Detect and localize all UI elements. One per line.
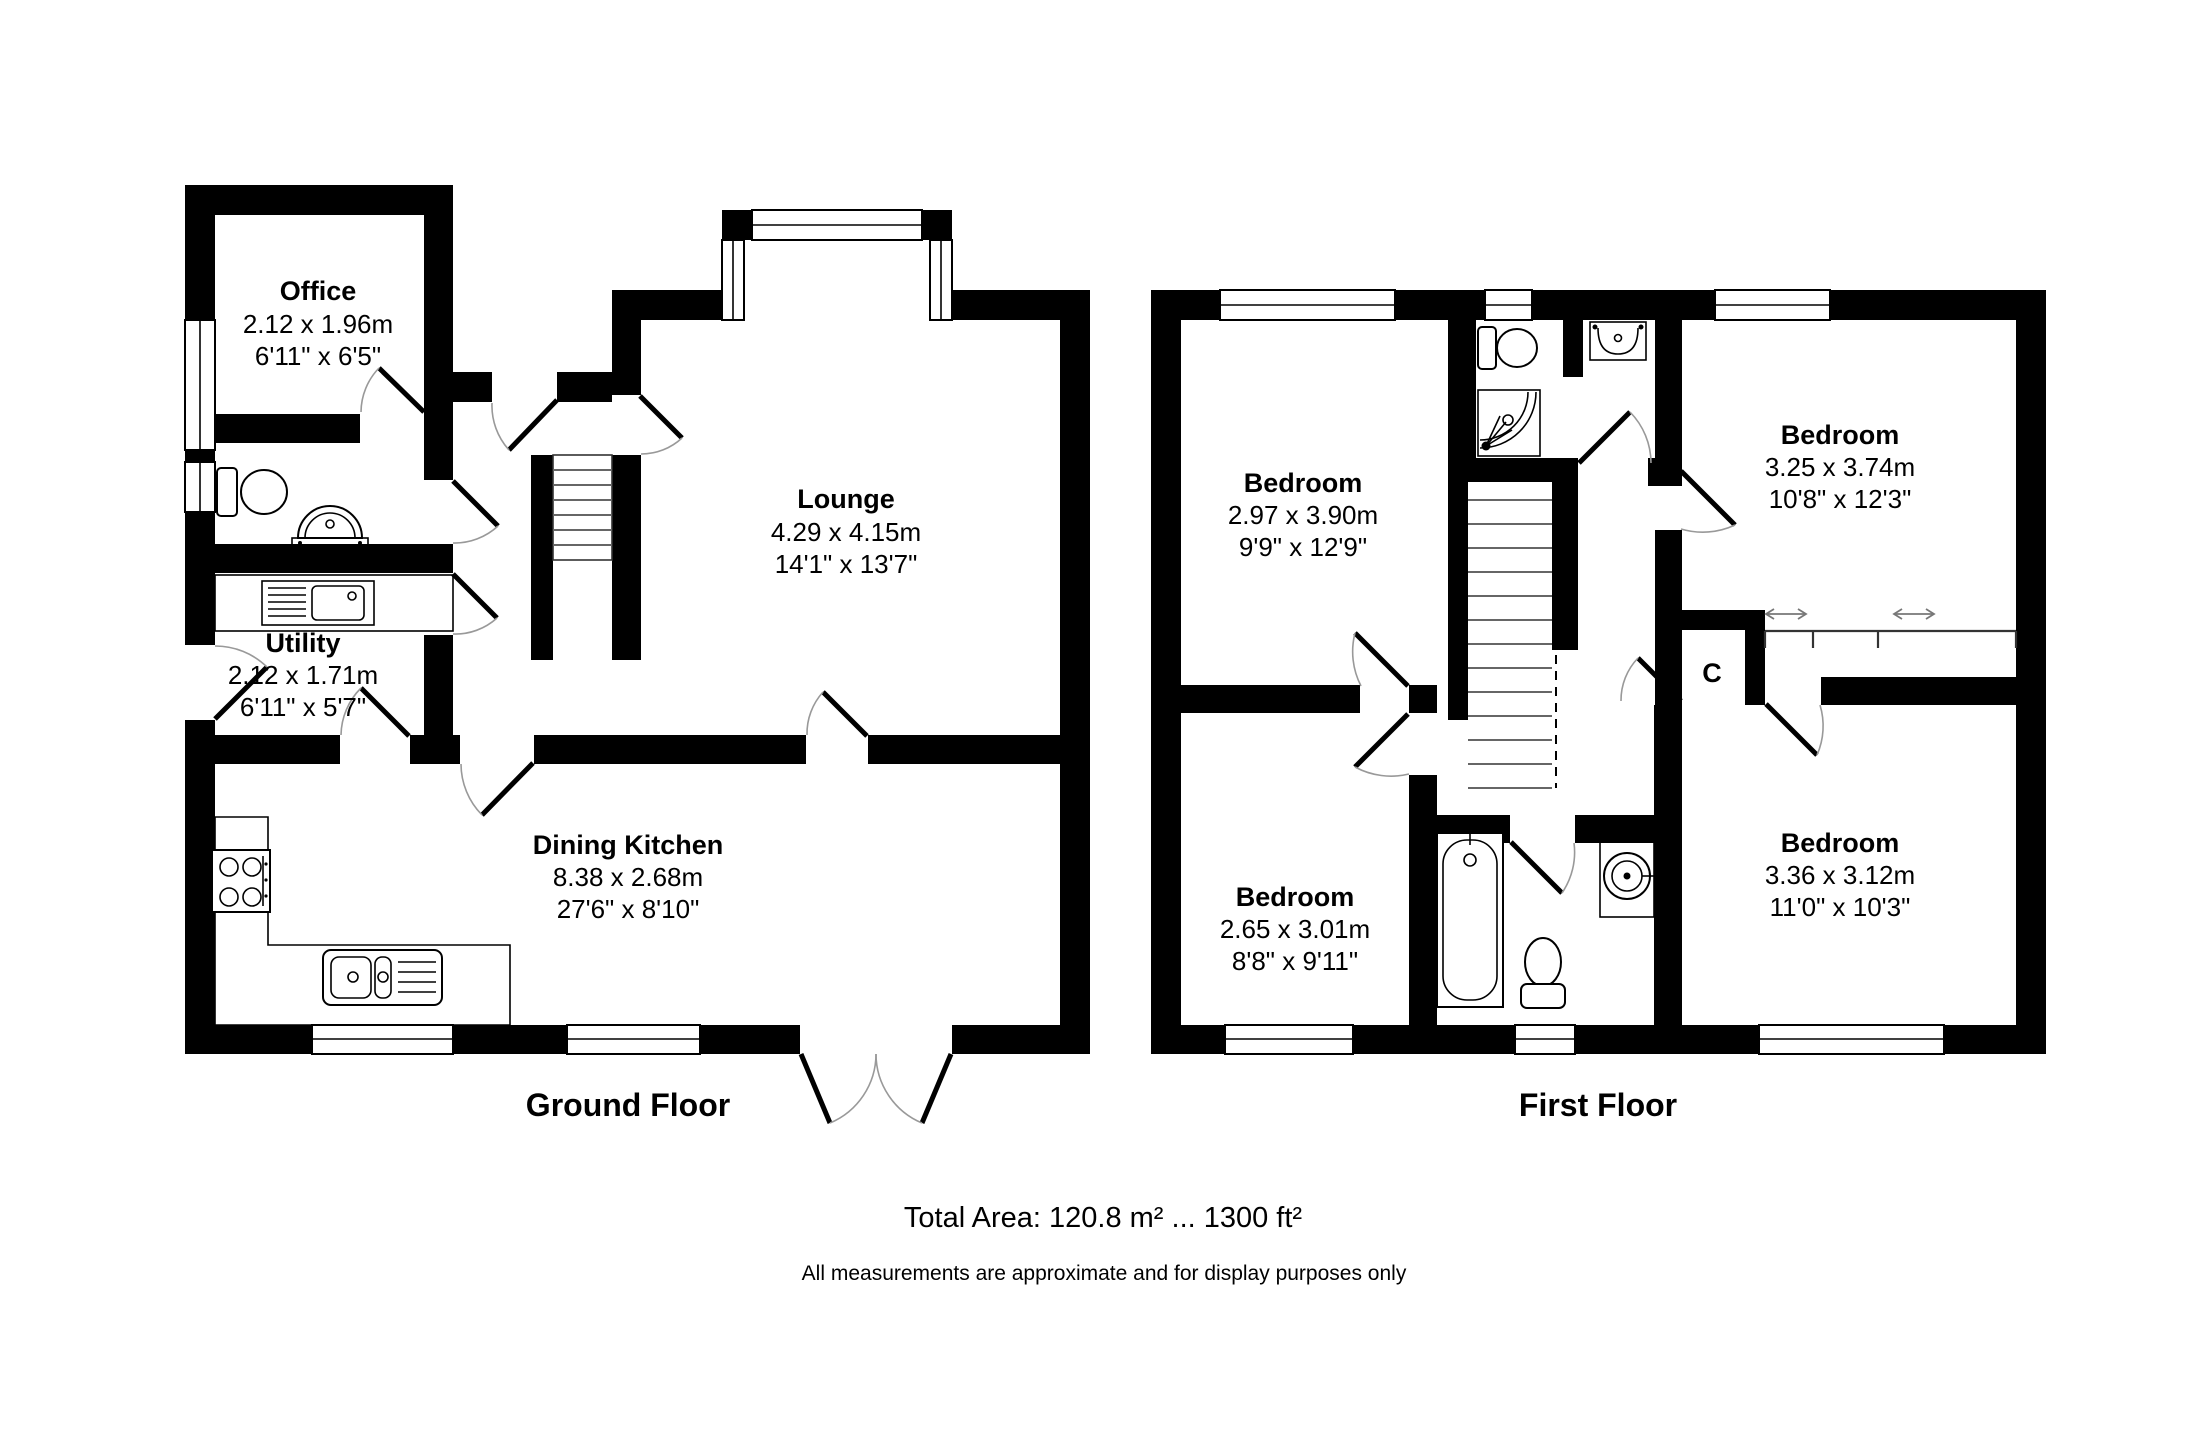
bedroom2-label: Bedroom 3.25 x 3.74m 10'8" x 12'3" xyxy=(1765,420,1915,514)
svg-text:4.29 x 4.15m: 4.29 x 4.15m xyxy=(771,517,921,547)
french-doors xyxy=(801,1054,951,1123)
utility-door-opening xyxy=(185,645,215,720)
bedroom4-door xyxy=(1766,704,1823,755)
office-door xyxy=(361,368,424,412)
svg-text:2.12 x 1.71m: 2.12 x 1.71m xyxy=(228,660,378,690)
ground-floor-plan: Office 2.12 x 1.96m 6'11" x 6'5" Lounge … xyxy=(185,185,1090,1123)
dining-kitchen-label: Dining Kitchen 8.38 x 2.68m 27'6" x 8'10… xyxy=(533,830,724,924)
svg-text:2.65 x 3.01m: 2.65 x 3.01m xyxy=(1220,914,1370,944)
svg-text:Utility: Utility xyxy=(265,628,340,658)
wardrobe-slide-arrow-icon xyxy=(1894,609,1934,619)
svg-text:8.38 x 2.68m: 8.38 x 2.68m xyxy=(553,862,703,892)
first-floor-caption: First Floor xyxy=(1519,1087,1677,1123)
ground-floor-caption: Ground Floor xyxy=(526,1087,730,1123)
bedroom1-window xyxy=(1220,290,1395,320)
total-area-text: Total Area: 120.8 m² ... 1300 ft² xyxy=(904,1202,1302,1234)
svg-text:Bedroom: Bedroom xyxy=(1236,882,1355,912)
utility-sink-fixture xyxy=(215,575,453,631)
bedroom2-door xyxy=(1681,471,1735,532)
wc-basin-fixture xyxy=(292,506,368,548)
toilet-fixture xyxy=(217,468,287,516)
first-floor-plan: Bedroom 2.97 x 3.90m 9'9" x 12'9" Bedroo… xyxy=(1151,290,2046,1123)
bathroom-window xyxy=(1515,1025,1575,1054)
svg-text:8'8" x 9'11": 8'8" x 9'11" xyxy=(1232,946,1358,976)
shower-room-stub-wall xyxy=(1563,320,1583,377)
utility-hall-door xyxy=(453,574,497,634)
bathroom-toilet-fixture xyxy=(1521,938,1565,1008)
lounge-door xyxy=(640,396,682,454)
footer: Total Area: 120.8 m² ... 1300 ft² All me… xyxy=(802,1202,1407,1285)
svg-text:Bedroom: Bedroom xyxy=(1244,468,1363,498)
hall-kitchen-door xyxy=(461,763,533,815)
bedroom3-window xyxy=(1225,1025,1353,1054)
ground-floor-stairs xyxy=(553,455,612,560)
svg-text:2.12 x 1.96m: 2.12 x 1.96m xyxy=(243,309,393,339)
shower-room-basin-fixture xyxy=(1590,322,1646,360)
wc-window xyxy=(185,462,215,512)
bathtub-fixture xyxy=(1437,833,1503,1007)
disclaimer-text: All measurements are approximate and for… xyxy=(802,1262,1407,1285)
bathroom-basin-fixture xyxy=(1600,835,1654,917)
svg-text:2.97 x 3.90m: 2.97 x 3.90m xyxy=(1228,500,1378,530)
bay-window-right xyxy=(930,240,952,320)
svg-text:14'1" x 13'7": 14'1" x 13'7" xyxy=(775,549,918,579)
svg-text:9'9" x 12'9": 9'9" x 12'9" xyxy=(1239,532,1367,562)
lounge-kitchen-door xyxy=(807,692,867,736)
dining-window xyxy=(567,1025,700,1054)
svg-text:Bedroom: Bedroom xyxy=(1781,420,1900,450)
svg-text:6'11" x 5'7": 6'11" x 5'7" xyxy=(240,692,366,722)
floorplan-drawing: Office 2.12 x 1.96m 6'11" x 6'5" Lounge … xyxy=(0,0,2200,1455)
bay-window-top xyxy=(752,210,922,240)
bedroom4-window xyxy=(1759,1025,1944,1054)
kitchen-window xyxy=(312,1025,453,1054)
svg-text:6'11" x 6'5": 6'11" x 6'5" xyxy=(255,341,381,371)
svg-text:Bedroom: Bedroom xyxy=(1781,828,1900,858)
shower-room-window xyxy=(1485,290,1532,320)
svg-text:3.25 x 3.74m: 3.25 x 3.74m xyxy=(1765,452,1915,482)
shower-room-toilet-fixture xyxy=(1478,327,1537,369)
floorplan-page: Office 2.12 x 1.96m 6'11" x 6'5" Lounge … xyxy=(0,0,2200,1455)
bay-window-left xyxy=(722,240,744,320)
svg-text:27'6" x 8'10": 27'6" x 8'10" xyxy=(557,894,700,924)
svg-text:10'8" x 12'3": 10'8" x 12'3" xyxy=(1769,484,1912,514)
bedroom4-label: Bedroom 3.36 x 3.12m 11'0" x 10'3" xyxy=(1765,828,1915,922)
cupboard-label: C xyxy=(1702,658,1722,688)
svg-text:3.36 x 3.12m: 3.36 x 3.12m xyxy=(1765,860,1915,890)
svg-text:Lounge: Lounge xyxy=(797,484,894,514)
first-floor-stairs xyxy=(1468,482,1556,788)
kitchen-sink-fixture xyxy=(323,950,442,1005)
svg-text:11'0" x 10'3": 11'0" x 10'3" xyxy=(1770,892,1911,922)
bathroom-door xyxy=(1511,842,1575,893)
wc-door xyxy=(453,481,498,543)
bedroom1-label: Bedroom 2.97 x 3.90m 9'9" x 12'9" xyxy=(1228,468,1378,562)
bedroom3-door xyxy=(1355,714,1409,776)
shower-room-door xyxy=(1579,412,1651,463)
front-door xyxy=(492,400,557,450)
svg-text:Dining Kitchen: Dining Kitchen xyxy=(533,830,724,860)
corner-shower-fixture xyxy=(1478,390,1540,456)
wardrobe-slide-arrow-icon xyxy=(1766,609,1806,619)
svg-text:Office: Office xyxy=(280,276,357,306)
bedroom3-label: Bedroom 2.65 x 3.01m 8'8" x 9'11" xyxy=(1220,882,1370,976)
hob-fixture xyxy=(212,850,270,912)
office-window xyxy=(185,320,215,450)
office-label: Office 2.12 x 1.96m 6'11" x 6'5" xyxy=(243,276,393,371)
utility-label: Utility 2.12 x 1.71m 6'11" x 5'7" xyxy=(228,628,378,722)
bedroom1-door xyxy=(1353,633,1408,686)
wardrobe-fixture xyxy=(1765,609,2016,648)
bedroom2-window xyxy=(1715,290,1830,320)
lounge-label: Lounge 4.29 x 4.15m 14'1" x 13'7" xyxy=(771,484,921,579)
